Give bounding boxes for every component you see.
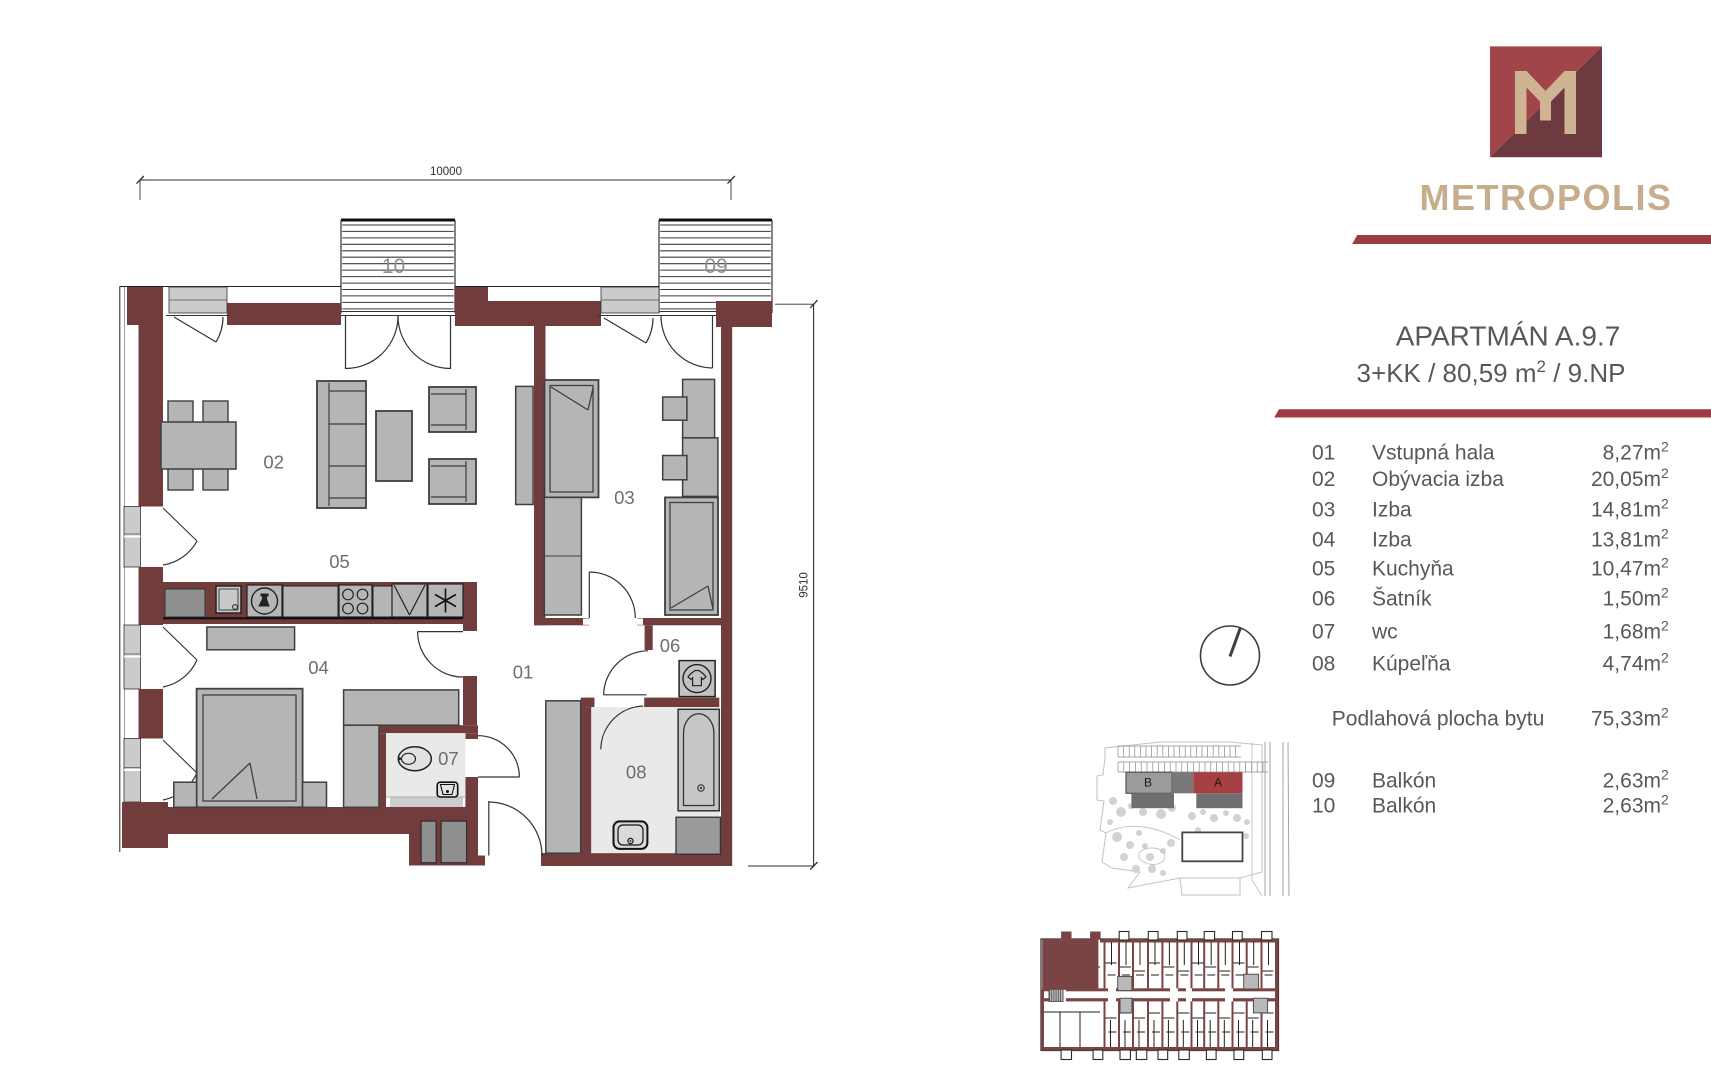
svg-text:Balkón: Balkón [1372, 770, 1436, 793]
svg-text:07: 07 [438, 748, 459, 769]
svg-text:04: 04 [308, 657, 329, 678]
svg-text:2: 2 [1661, 792, 1669, 808]
svg-text:Podlahová plocha bytu: Podlahová plocha bytu [1332, 708, 1545, 731]
svg-text:13,81m: 13,81m [1591, 529, 1661, 552]
svg-text:08: 08 [626, 761, 647, 782]
svg-text:METROPOLIS: METROPOLIS [1419, 177, 1672, 218]
svg-text:2: 2 [1661, 496, 1669, 512]
svg-text:Kuchyňa: Kuchyňa [1372, 558, 1454, 581]
svg-text:2: 2 [1661, 767, 1669, 783]
svg-text:2: 2 [1661, 439, 1669, 455]
svg-text:1,68m: 1,68m [1603, 621, 1661, 644]
svg-text:02: 02 [263, 451, 284, 472]
svg-text:2: 2 [1661, 585, 1669, 601]
svg-text:20,05m: 20,05m [1591, 468, 1661, 491]
svg-text:2,63m: 2,63m [1603, 770, 1661, 793]
svg-text:75,33m: 75,33m [1591, 708, 1661, 731]
svg-text:Balkón: Balkón [1372, 795, 1436, 818]
svg-text:A: A [1214, 776, 1222, 790]
svg-text:08: 08 [1312, 653, 1335, 676]
svg-text:10: 10 [1312, 795, 1335, 818]
svg-text:Obývacia izba: Obývacia izba [1372, 468, 1504, 491]
svg-text:2,63m: 2,63m [1603, 795, 1661, 818]
svg-text:2: 2 [1661, 526, 1669, 542]
svg-text:04: 04 [1312, 529, 1336, 552]
svg-text:1,50m: 1,50m [1603, 588, 1661, 611]
svg-text:06: 06 [660, 635, 681, 656]
svg-text:B: B [1144, 776, 1152, 790]
svg-text:8,27m: 8,27m [1603, 442, 1661, 465]
svg-text:2: 2 [1661, 555, 1669, 571]
svg-text:3+KK / 80,59 m2 / 9.NP: 3+KK / 80,59 m2 / 9.NP [1357, 357, 1626, 388]
svg-text:10000: 10000 [430, 166, 462, 178]
svg-text:2: 2 [1661, 705, 1669, 721]
svg-text:01: 01 [513, 661, 534, 682]
svg-text:Vstupná hala: Vstupná hala [1372, 442, 1495, 465]
svg-text:4,74m: 4,74m [1603, 653, 1661, 676]
svg-text:Izba: Izba [1372, 499, 1412, 522]
svg-text:2: 2 [1661, 650, 1669, 666]
svg-text:Izba: Izba [1372, 529, 1412, 552]
svg-text:2: 2 [1661, 618, 1669, 634]
svg-text:9510: 9510 [799, 572, 811, 598]
svg-text:01: 01 [1312, 442, 1335, 465]
svg-text:10,47m: 10,47m [1591, 558, 1661, 581]
svg-text:03: 03 [1312, 499, 1335, 522]
svg-text:05: 05 [329, 551, 350, 572]
svg-text:09: 09 [1312, 770, 1335, 793]
svg-text:APARTMÁN A.9.7: APARTMÁN A.9.7 [1396, 321, 1621, 352]
svg-text:02: 02 [1312, 468, 1335, 491]
svg-text:Kúpeľňa: Kúpeľňa [1372, 653, 1451, 676]
svg-text:07: 07 [1312, 621, 1335, 644]
svg-text:06: 06 [1312, 588, 1335, 611]
svg-text:14,81m: 14,81m [1591, 499, 1661, 522]
svg-text:2: 2 [1661, 465, 1669, 481]
svg-text:10: 10 [382, 255, 405, 278]
svg-text:03: 03 [614, 487, 635, 508]
svg-text:wc: wc [1371, 621, 1398, 644]
svg-text:05: 05 [1312, 558, 1335, 581]
svg-text:Šatník: Šatník [1372, 588, 1432, 611]
svg-text:09: 09 [704, 255, 727, 278]
